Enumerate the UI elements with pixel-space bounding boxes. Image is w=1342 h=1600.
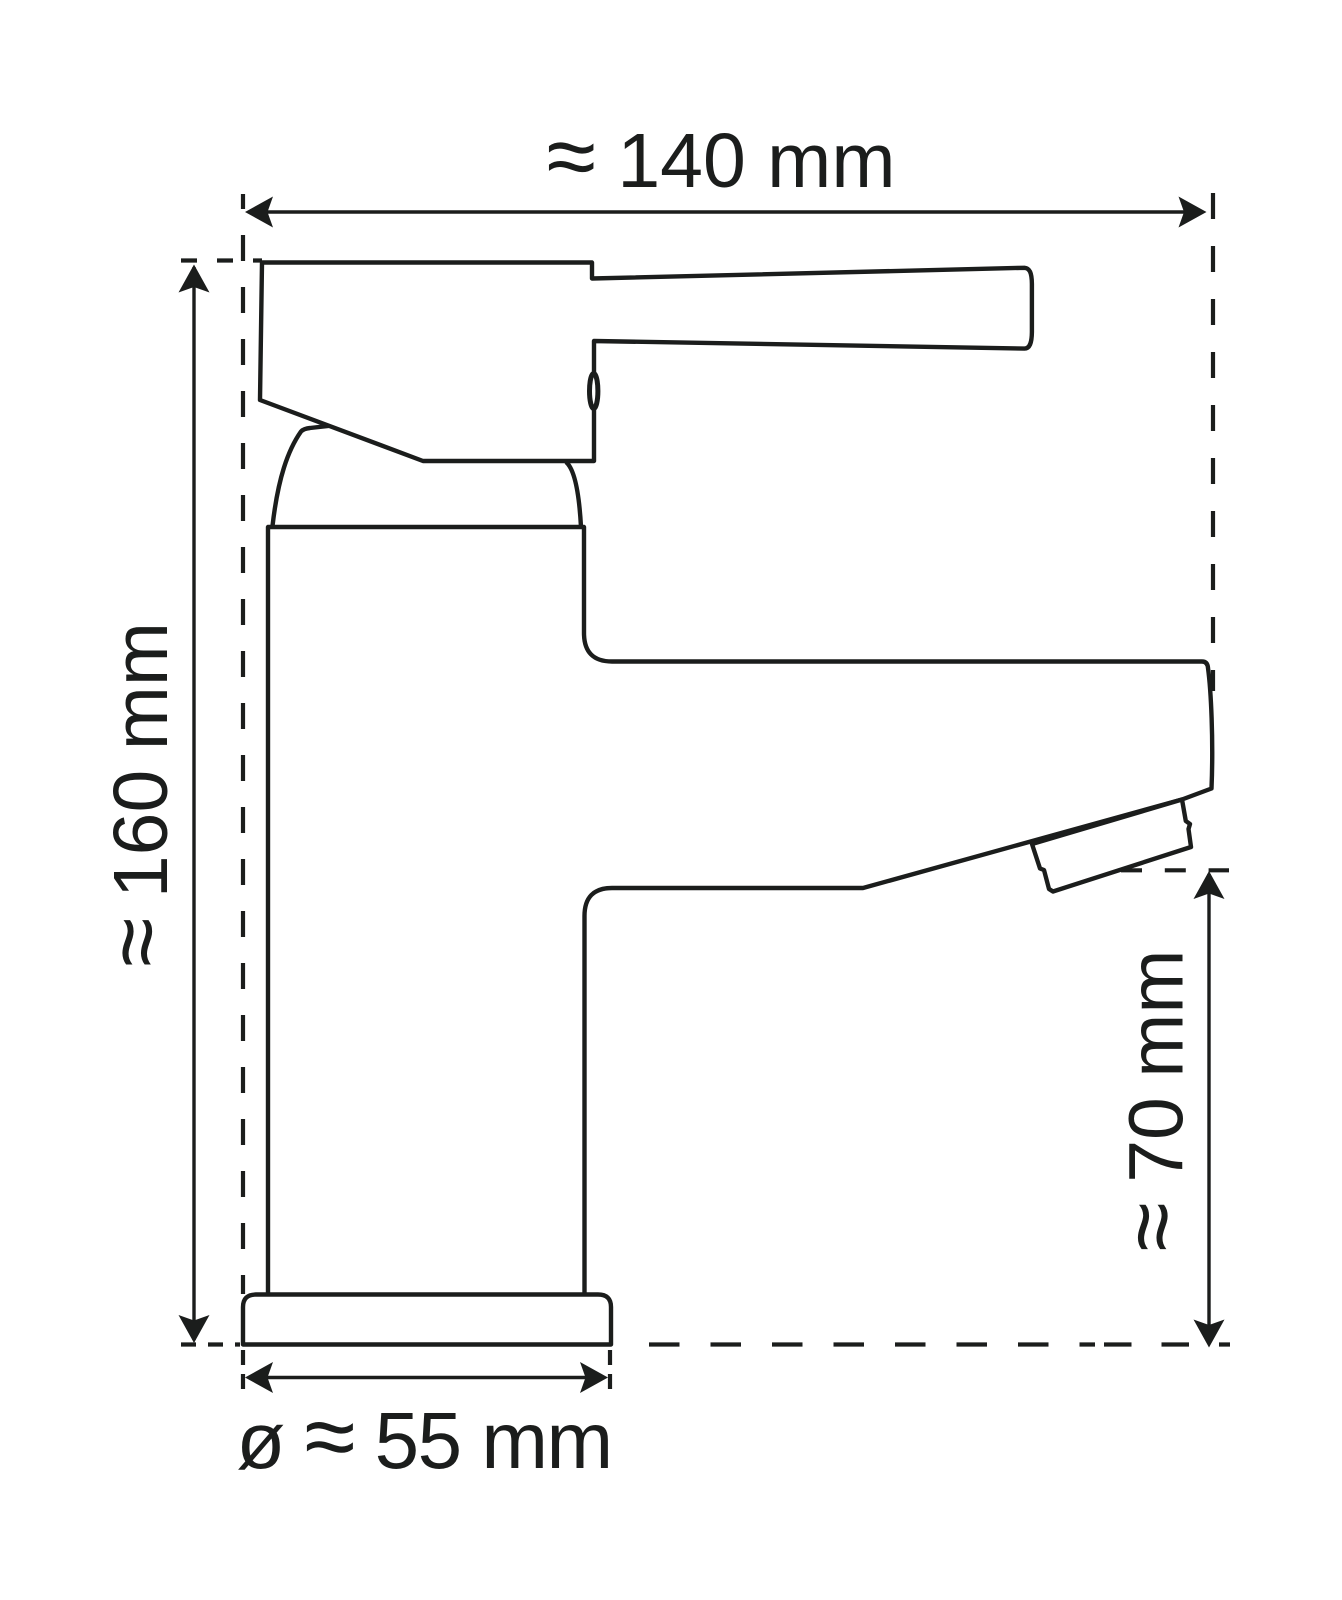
svg-text:≈ 140 mm: ≈ 140 mm [547, 107, 896, 207]
svg-text:ø ≈ 55 mm: ø ≈ 55 mm [236, 1384, 611, 1488]
svg-text:≈ 160 mm: ≈ 160 mm [87, 622, 187, 967]
svg-text:≈ 70 mm: ≈ 70 mm [1103, 949, 1203, 1251]
